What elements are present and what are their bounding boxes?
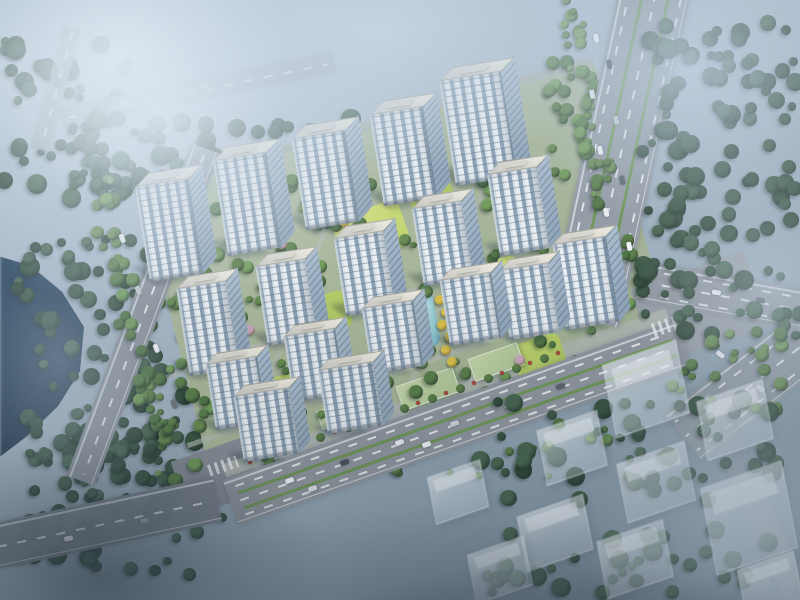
lane-marking bbox=[67, 63, 329, 119]
forest-tree bbox=[63, 250, 75, 262]
rooftop-unit bbox=[153, 171, 180, 180]
forest-tree bbox=[658, 121, 678, 141]
courtyard-tree bbox=[185, 388, 200, 403]
building-front-facade bbox=[440, 273, 502, 346]
courtyard-tree bbox=[710, 371, 721, 382]
forest-tree bbox=[282, 121, 294, 133]
rooftop-unit bbox=[504, 160, 529, 168]
forest-tree bbox=[791, 331, 800, 341]
forest-tree bbox=[25, 449, 35, 459]
courtyard-tree bbox=[575, 38, 587, 50]
rooftop-unit bbox=[193, 274, 218, 282]
ghost-context-building bbox=[616, 441, 696, 524]
courtyard-tree bbox=[461, 370, 471, 380]
forest-tree bbox=[768, 92, 785, 109]
car bbox=[716, 350, 726, 359]
forest-tree bbox=[173, 113, 192, 132]
courtyard-tree bbox=[113, 319, 125, 331]
courtyard-tree bbox=[621, 251, 630, 260]
forest-tree bbox=[782, 160, 797, 175]
forest-tree bbox=[65, 422, 81, 438]
forest-tree bbox=[112, 151, 131, 170]
forest-tree bbox=[75, 93, 84, 102]
forest-tree bbox=[138, 128, 152, 142]
forest-tree bbox=[11, 142, 27, 158]
forest-tree bbox=[39, 360, 49, 370]
forest-tree bbox=[664, 258, 676, 270]
forest-tree bbox=[30, 485, 40, 495]
ghost-roof-ridge bbox=[709, 472, 779, 515]
apartment-building bbox=[292, 131, 360, 230]
forest-tree bbox=[720, 225, 738, 243]
forest-tree bbox=[163, 557, 172, 566]
courtyard-tree bbox=[588, 123, 596, 131]
courtyard-tree bbox=[116, 289, 129, 302]
courtyard-tree bbox=[604, 175, 612, 183]
forest-tree bbox=[14, 96, 23, 105]
forest-tree bbox=[198, 116, 214, 132]
forest-tree bbox=[58, 476, 72, 490]
courtyard-tree bbox=[591, 191, 597, 197]
forest-tree bbox=[683, 235, 698, 250]
rooftop-unit bbox=[378, 295, 403, 303]
forest-tree bbox=[94, 309, 106, 321]
forest-tree bbox=[725, 189, 741, 205]
forest-tree bbox=[93, 266, 103, 276]
car bbox=[593, 33, 599, 43]
forest-tree bbox=[493, 397, 503, 407]
forest-tree bbox=[741, 57, 754, 70]
apartment-building bbox=[234, 388, 300, 462]
forest-tree bbox=[734, 270, 754, 290]
forest-tree bbox=[783, 212, 799, 228]
sidewalk-tree bbox=[540, 354, 549, 363]
courtyard-tree bbox=[564, 41, 572, 49]
forest-tree bbox=[787, 181, 800, 196]
forest-tree bbox=[681, 135, 699, 153]
forest-tree bbox=[551, 578, 570, 597]
forest-tree bbox=[764, 266, 773, 275]
forest-tree bbox=[700, 216, 715, 231]
forest-tree bbox=[686, 167, 706, 187]
sidewalk-tree bbox=[484, 374, 493, 383]
forest-tree bbox=[716, 261, 734, 279]
forest-tree bbox=[135, 470, 151, 486]
courtyard-tree bbox=[126, 330, 136, 340]
forest-tree bbox=[6, 40, 26, 60]
courtyard-tree bbox=[688, 373, 696, 381]
forest-tree bbox=[658, 18, 674, 34]
forest-tree bbox=[662, 110, 671, 119]
ghost-context-building bbox=[467, 535, 533, 600]
aerial-development-rendering bbox=[0, 0, 800, 600]
forest-tree bbox=[87, 345, 102, 360]
forest-tree bbox=[19, 156, 29, 166]
sidewalk-tree bbox=[456, 384, 465, 393]
forest-tree bbox=[183, 568, 196, 581]
forest-tree bbox=[38, 448, 53, 463]
forest-tree bbox=[746, 228, 760, 242]
apartment-building bbox=[487, 167, 549, 256]
forest-tree bbox=[717, 104, 733, 120]
courtyard-tree bbox=[188, 458, 203, 473]
courtyard-tree bbox=[558, 85, 571, 98]
forest-tree bbox=[69, 372, 78, 381]
forest-tree bbox=[712, 26, 722, 36]
forest-tree bbox=[75, 84, 85, 94]
courtyard-tree bbox=[562, 0, 571, 5]
forest-tree bbox=[30, 425, 43, 438]
rooftop-unit bbox=[570, 231, 596, 239]
rooftop-unit bbox=[272, 252, 297, 260]
forest-tree bbox=[124, 562, 139, 577]
forest-tree bbox=[547, 410, 557, 420]
forest-tree bbox=[698, 473, 708, 483]
forest-tree bbox=[501, 468, 510, 477]
apartment-building bbox=[318, 362, 383, 434]
apartment-building bbox=[370, 107, 438, 206]
forest-tree bbox=[722, 207, 737, 222]
courtyard-tree bbox=[146, 405, 154, 413]
forest-tree bbox=[131, 443, 140, 452]
forest-tree bbox=[704, 241, 720, 257]
forest-tree bbox=[775, 63, 790, 78]
courtyard-tree bbox=[705, 335, 719, 349]
rooftop-unit bbox=[300, 323, 325, 331]
courtyard-tree bbox=[546, 56, 560, 70]
forest-tree bbox=[763, 139, 776, 152]
courtyard-tree bbox=[107, 230, 117, 240]
forest-tree bbox=[731, 32, 747, 48]
courtyard-tree bbox=[549, 341, 556, 348]
forest-tree bbox=[779, 113, 790, 124]
forest-tree bbox=[761, 86, 771, 96]
forest-tree bbox=[82, 140, 98, 156]
forest-tree bbox=[41, 311, 60, 330]
forest-tree bbox=[117, 62, 130, 75]
forest-tree bbox=[760, 15, 776, 31]
courtyard-tree bbox=[424, 371, 438, 385]
courtyard-tree bbox=[758, 364, 770, 376]
forest-tree bbox=[746, 301, 763, 318]
forest-tree bbox=[97, 323, 110, 336]
forest-tree bbox=[80, 169, 88, 177]
forest-tree bbox=[152, 132, 165, 145]
rooftop-unit bbox=[456, 267, 481, 275]
forest-tree bbox=[69, 181, 79, 191]
forest-tree bbox=[745, 102, 757, 114]
building-front-facade bbox=[318, 362, 383, 434]
courtyard-tree bbox=[574, 127, 587, 140]
courtyard-tree bbox=[731, 349, 739, 357]
ghost-roof-ridge bbox=[433, 466, 477, 492]
road-edge-line bbox=[0, 517, 222, 566]
forest-tree bbox=[644, 206, 653, 215]
forest-tree bbox=[760, 221, 775, 236]
ghost-roof-ridge bbox=[543, 418, 594, 448]
forest-tree bbox=[40, 243, 53, 256]
forest-tree bbox=[636, 145, 649, 158]
courtyard-tree bbox=[164, 424, 174, 434]
ghost-context-building bbox=[536, 410, 607, 486]
rooftop-unit bbox=[429, 194, 454, 202]
forest-tree bbox=[652, 225, 663, 236]
forest-tree bbox=[500, 490, 517, 507]
forest-tree bbox=[64, 262, 83, 281]
forest-tree bbox=[683, 558, 697, 572]
forest-tree bbox=[124, 234, 136, 246]
apartment-building bbox=[135, 179, 203, 282]
forest-tree bbox=[268, 125, 283, 140]
courtyard-tree bbox=[199, 409, 209, 419]
courtyard-tree bbox=[748, 347, 755, 354]
forest-tree bbox=[27, 174, 47, 194]
courtyard-tree bbox=[562, 31, 570, 39]
sidewalk-tree bbox=[428, 394, 437, 403]
courtyard-tree bbox=[167, 298, 176, 307]
courtyard-tree bbox=[560, 20, 569, 29]
forest-tree bbox=[724, 144, 738, 158]
courtyard-tree bbox=[559, 115, 568, 124]
forest-tree bbox=[149, 565, 161, 577]
forest-tree bbox=[126, 427, 143, 444]
courtyard-tree bbox=[604, 159, 611, 166]
forest-tree bbox=[714, 51, 724, 61]
courtyard-tree bbox=[246, 296, 253, 303]
forest-tree bbox=[659, 96, 674, 111]
forest-tree bbox=[21, 82, 37, 98]
rooftop-unit bbox=[388, 99, 415, 108]
courtyard-tree bbox=[99, 243, 108, 252]
courtyard-tree bbox=[107, 177, 115, 185]
forest-tree bbox=[776, 272, 785, 281]
forest-tree bbox=[657, 182, 672, 197]
forest-tree bbox=[693, 313, 703, 323]
rooftop-unit bbox=[222, 351, 247, 359]
forest-tree bbox=[505, 394, 523, 412]
sidewalk-tree bbox=[512, 364, 521, 373]
courtyard-tree bbox=[575, 65, 590, 80]
forest-tree bbox=[87, 110, 107, 130]
forest-tree bbox=[92, 36, 110, 54]
forest-tree bbox=[0, 172, 13, 189]
forest-tree bbox=[666, 585, 679, 598]
forest-tree bbox=[228, 119, 246, 137]
forest-tree bbox=[497, 432, 506, 441]
courtyard-tree bbox=[106, 202, 115, 211]
forest-tree bbox=[658, 39, 678, 59]
sidewalk-tree bbox=[400, 404, 409, 413]
forest-tree bbox=[72, 408, 84, 420]
forest-tree bbox=[641, 309, 650, 318]
forest-tree bbox=[516, 453, 532, 469]
courtyard-tree bbox=[505, 447, 515, 457]
courtyard-tree bbox=[133, 394, 146, 407]
courtyard-tree bbox=[774, 327, 788, 341]
rooftop-unit bbox=[336, 357, 362, 365]
forest-tree bbox=[714, 161, 731, 178]
courtyard-tree bbox=[751, 326, 763, 338]
ghost-roof-ridge bbox=[524, 502, 580, 533]
rooftop-unit bbox=[310, 123, 337, 132]
ghost-roof-ridge bbox=[474, 543, 522, 570]
building-front-facade bbox=[234, 388, 300, 462]
forest-tree bbox=[745, 172, 759, 186]
rooftop-unit bbox=[351, 224, 376, 232]
rooftop-unit bbox=[231, 145, 258, 154]
courtyard-tree bbox=[156, 393, 164, 401]
apartment-building bbox=[440, 273, 502, 346]
ghost-roof-ridge bbox=[624, 449, 681, 482]
forest-tree bbox=[46, 151, 57, 162]
forest-tree bbox=[757, 443, 765, 451]
forest-tree bbox=[68, 126, 77, 135]
rooftop-unit bbox=[515, 257, 539, 264]
forest-tree bbox=[547, 564, 556, 573]
forest-tree bbox=[116, 446, 129, 459]
forest-tree bbox=[638, 261, 657, 280]
forest-tree bbox=[789, 57, 798, 66]
forest-tree bbox=[172, 533, 182, 543]
courtyard-tree bbox=[686, 359, 698, 371]
yellow-accent-tree bbox=[447, 357, 457, 367]
courtyard-tree bbox=[110, 272, 124, 286]
forest-tree bbox=[781, 25, 791, 35]
forest-tree bbox=[66, 490, 79, 503]
forest-tree bbox=[772, 308, 786, 322]
forest-tree bbox=[712, 70, 729, 87]
forest-tree bbox=[62, 188, 82, 208]
forest-tree bbox=[151, 146, 171, 166]
courtyard-tree bbox=[125, 318, 138, 331]
forest-tree bbox=[788, 102, 797, 111]
rooftop-unit bbox=[251, 383, 277, 391]
forest-tree bbox=[83, 368, 100, 385]
apartment-building bbox=[213, 153, 281, 256]
forest-tree bbox=[91, 179, 104, 192]
courtyard-tree bbox=[592, 181, 601, 190]
forest-tree bbox=[682, 305, 694, 317]
courtyard-tree bbox=[755, 348, 769, 362]
forest-tree bbox=[97, 156, 111, 170]
forest-tree bbox=[792, 306, 800, 321]
courtyard-tree bbox=[155, 470, 162, 477]
forest-tree bbox=[57, 238, 66, 247]
courtyard-tree bbox=[729, 355, 738, 364]
forest-tree bbox=[251, 125, 265, 139]
courtyard-tree bbox=[774, 377, 788, 391]
forest-tree bbox=[779, 198, 791, 210]
courtyard-tree bbox=[133, 374, 147, 388]
rooftop-unit bbox=[459, 64, 489, 74]
ghost-context-building bbox=[427, 459, 489, 525]
courtyard-tree bbox=[581, 99, 593, 111]
forest-tree bbox=[663, 162, 673, 172]
